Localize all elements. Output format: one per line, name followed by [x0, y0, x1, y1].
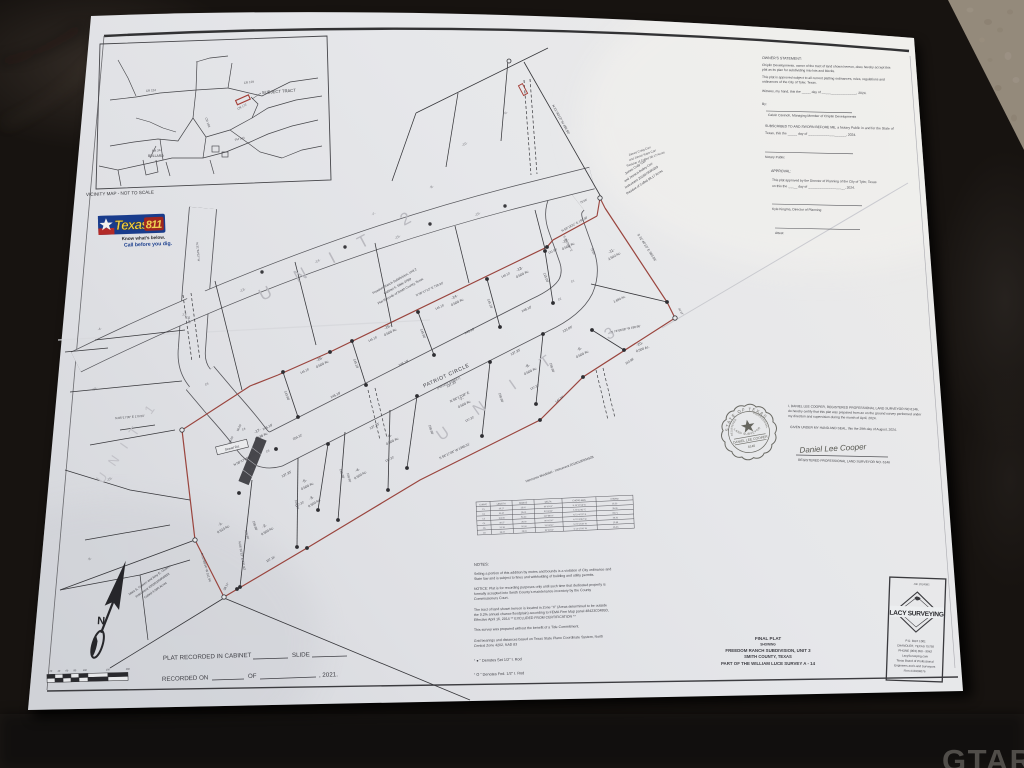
- svg-text:NOTES:: NOTES:: [474, 561, 489, 567]
- svg-text:90°00'00": 90°00'00": [544, 511, 553, 513]
- svg-text:By:: By:: [762, 102, 767, 106]
- svg-text:90°00'00": 90°00'00": [544, 520, 553, 522]
- svg-text:25.00: 25.00: [522, 531, 528, 533]
- svg-text:SMITH COUNTY, TEXAS: SMITH COUNTY, TEXAS: [744, 654, 792, 659]
- svg-text:N: N: [97, 615, 106, 627]
- svg-text:Attest: Attest: [775, 231, 784, 235]
- svg-text:GTAR: GTAR: [942, 743, 1024, 768]
- svg-text:39.27: 39.27: [499, 513, 505, 515]
- svg-text:Notary Public: Notary Public: [765, 155, 785, 159]
- svg-text:35.36: 35.36: [612, 508, 618, 510]
- svg-text:35.02': 35.02': [187, 316, 192, 325]
- svg-text:85.71: 85.71: [612, 513, 618, 515]
- svg-text:P.O. BOX 1001: P.O. BOX 1001: [905, 639, 926, 644]
- svg-text:SHOWING: SHOWING: [760, 643, 776, 647]
- svg-text:DELTA: DELTA: [545, 500, 552, 503]
- svg-text:Job 2024081: Job 2024081: [913, 582, 930, 587]
- svg-text:LENGTH: LENGTH: [497, 503, 506, 505]
- svg-text:90°00'00": 90°00'00": [544, 506, 553, 508]
- svg-text:35.36: 35.36: [613, 517, 619, 519]
- svg-text:APPROVAL:: APPROVAL:: [771, 169, 791, 173]
- svg-text:Firm #10104076: Firm #10104076: [904, 669, 926, 674]
- svg-text:50.00: 50.00: [521, 526, 527, 528]
- svg-text:CHORD: CHORD: [610, 498, 619, 500]
- svg-text:25.00: 25.00: [521, 521, 527, 523]
- svg-text:35.36: 35.36: [613, 527, 619, 529]
- svg-text:39.27: 39.27: [499, 522, 505, 524]
- svg-text:35.36: 35.36: [612, 503, 618, 505]
- svg-text:200: 200: [125, 668, 131, 671]
- svg-text:BULLARD: BULLARD: [148, 154, 164, 158]
- svg-text:50.00: 50.00: [521, 517, 527, 519]
- svg-text:39.27: 39.27: [500, 532, 506, 534]
- svg-text:39.27: 39.27: [499, 508, 505, 510]
- svg-text:SLIDE: SLIDE: [292, 651, 310, 659]
- svg-text:OWNER'S STATEMENT:: OWNER'S STATEMENT:: [762, 56, 802, 61]
- svg-text:OF: OF: [248, 673, 257, 680]
- svg-text:RADIUS: RADIUS: [519, 501, 528, 504]
- svg-text:102.90: 102.90: [499, 517, 506, 519]
- svg-text:CURVE: CURVE: [479, 504, 487, 506]
- svg-text:FINAL PLAT: FINAL PLAT: [755, 636, 782, 641]
- svg-text:26.18: 26.18: [500, 527, 506, 529]
- svg-text:25.00: 25.00: [521, 507, 527, 509]
- svg-text:30°00'00": 30°00'00": [545, 525, 554, 527]
- svg-text:90°00'00": 90°00'00": [545, 530, 554, 532]
- svg-text:811: 811: [146, 219, 163, 232]
- svg-text:, 2021.: , 2021.: [319, 671, 338, 679]
- svg-text:25.88: 25.88: [613, 522, 619, 524]
- svg-text:25.00: 25.00: [521, 512, 527, 514]
- svg-text:FREEDOM RANCH SUBDIVISION, UNI: FREEDOM RANCH SUBDIVISION, UNIT 3: [725, 648, 811, 653]
- svg-text:PART OF THE WILLIAM LUCE SURVE: PART OF THE WILLIAM LUCE SURVEY A - 14: [721, 661, 816, 666]
